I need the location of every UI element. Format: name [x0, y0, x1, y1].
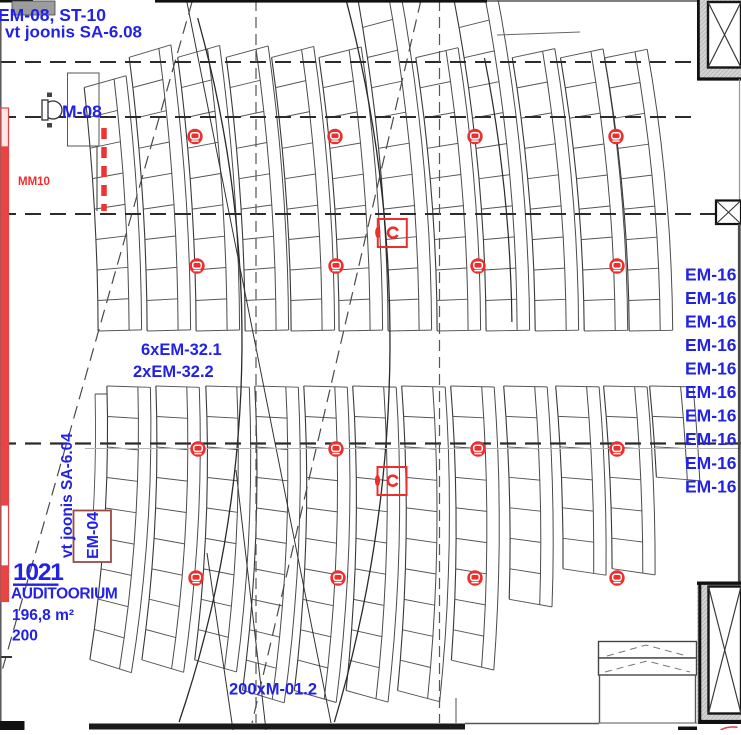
svg-text:M-08: M-08: [62, 102, 102, 122]
svg-text:196,8 m²: 196,8 m²: [12, 607, 74, 624]
svg-text:200: 200: [12, 628, 38, 645]
svg-text:6xEM-32.1: 6xEM-32.1: [141, 341, 222, 359]
svg-text:200xM-01.2: 200xM-01.2: [229, 681, 317, 699]
svg-text:EM-16: EM-16: [685, 382, 737, 402]
svg-text:EM-16: EM-16: [685, 453, 737, 473]
svg-text:vt joonis SA-6.08: vt joonis SA-6.08: [5, 23, 142, 42]
svg-text:EM-16: EM-16: [685, 406, 737, 426]
svg-text:AUDITOORIUM: AUDITOORIUM: [11, 586, 117, 603]
svg-text:vt joonis SA-6.04: vt joonis SA-6.04: [59, 433, 76, 558]
svg-text:EM-16: EM-16: [685, 288, 737, 308]
svg-text:1021: 1021: [13, 559, 63, 586]
svg-text:EM-16: EM-16: [685, 264, 737, 284]
svg-text:EM-16: EM-16: [685, 476, 737, 496]
svg-text:MM10: MM10: [18, 176, 50, 188]
svg-text:2xEM-32.2: 2xEM-32.2: [133, 363, 214, 381]
svg-text:EM-16: EM-16: [685, 335, 737, 355]
svg-text:EM-16: EM-16: [685, 312, 737, 332]
svg-text:EM-04: EM-04: [85, 512, 102, 559]
svg-text:EM-16: EM-16: [685, 359, 737, 379]
svg-text:EM-16: EM-16: [685, 429, 737, 449]
